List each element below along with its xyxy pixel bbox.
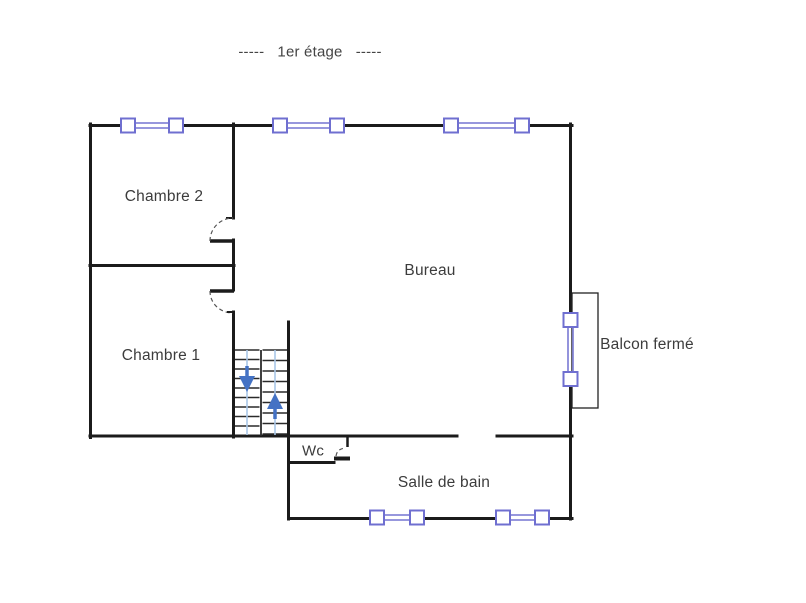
windows (121, 119, 578, 525)
room-label-balcon: Balcon fermé (600, 336, 694, 354)
walls (90, 124, 572, 519)
window-icon (564, 313, 578, 386)
door-swing-chambre1 (210, 291, 234, 313)
floor-title: ----- 1er étage ----- (238, 44, 381, 61)
staircase (235, 350, 287, 436)
room-label-chambre1: Chambre 1 (122, 347, 200, 365)
room-label-chambre2: Chambre 2 (125, 188, 203, 206)
floorplan-canvas: ----- 1er étage ----- Chambre 2 Chambre … (0, 0, 806, 603)
door-swing-wc (334, 437, 350, 459)
doors (210, 218, 350, 459)
window-icon (370, 511, 424, 525)
door-swing-chambre2 (210, 218, 234, 241)
room-label-wc: Wc (302, 443, 324, 460)
stairs-up-arrow-icon (267, 393, 283, 419)
room-label-salle-de-bain: Salle de bain (398, 474, 490, 492)
window-icon (273, 119, 344, 133)
balcony-outline (572, 293, 598, 408)
window-icon (496, 511, 549, 525)
window-icon (121, 119, 183, 133)
floorplan-drawing (0, 0, 806, 603)
window-icon (444, 119, 529, 133)
room-label-bureau: Bureau (404, 262, 455, 280)
